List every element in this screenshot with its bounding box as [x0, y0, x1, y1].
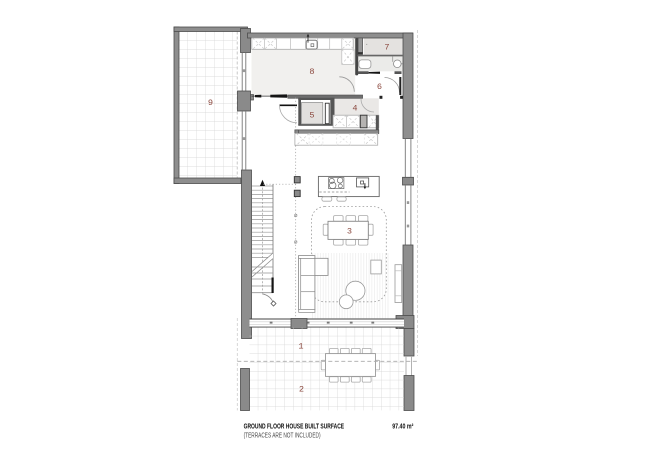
- svg-text:7: 7: [384, 42, 389, 52]
- svg-text:3: 3: [347, 226, 352, 236]
- svg-text:2: 2: [299, 385, 304, 395]
- svg-text:1: 1: [298, 342, 303, 352]
- svg-text:8: 8: [309, 67, 314, 77]
- svg-text:4: 4: [352, 103, 357, 113]
- svg-text:(TERRACES ARE NOT INCLUDED): (TERRACES ARE NOT INCLUDED): [244, 430, 321, 439]
- svg-text:GROUND FLOOR HOUSE BUILT SURFA: GROUND FLOOR HOUSE BUILT SURFACE: [244, 422, 345, 431]
- svg-text:6: 6: [377, 82, 382, 92]
- svg-text:5: 5: [309, 110, 314, 120]
- svg-text:9: 9: [208, 98, 213, 108]
- svg-text:97.40 m²: 97.40 m²: [392, 422, 414, 431]
